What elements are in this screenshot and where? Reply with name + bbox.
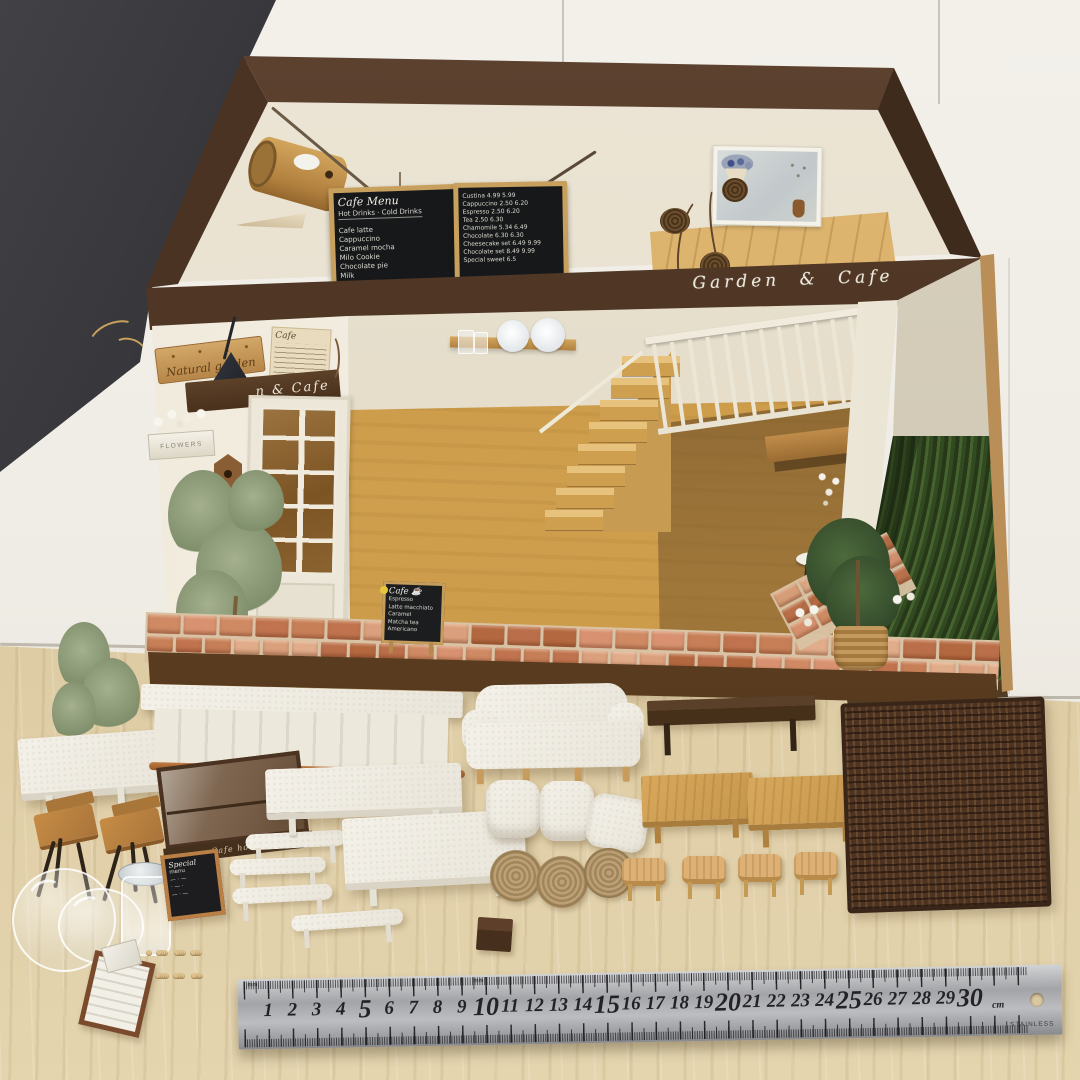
flowers-box-label: FLOWERS bbox=[148, 430, 216, 461]
jute-rope-coil bbox=[536, 856, 588, 908]
ruler-mm-label: mm bbox=[247, 982, 257, 988]
menu-left-title: Cafe Menu bbox=[338, 192, 456, 209]
white-pouf bbox=[486, 780, 540, 838]
menu-chalkboard-left: Cafe Menu Hot Drinks · Cold Drinks Cafe … bbox=[328, 184, 467, 291]
aframe-leg bbox=[389, 641, 393, 653]
special-lines: menu— · —· — ·— · — bbox=[169, 864, 216, 899]
picture-branches bbox=[783, 157, 813, 184]
twig-decor-wreath bbox=[660, 208, 690, 234]
ruler-mm-label: mm bbox=[473, 978, 483, 984]
garden-white-flowers bbox=[788, 600, 828, 632]
twig-decor-wreath bbox=[722, 178, 748, 202]
glass-cup bbox=[458, 330, 474, 354]
pine-tree-basket bbox=[834, 626, 888, 670]
beads-pile bbox=[146, 950, 210, 1010]
menu-left-columns: Hot Drinks · Cold Drinks bbox=[338, 207, 422, 220]
wood-stool bbox=[738, 854, 786, 906]
aframe-board: Cafe ☕ EspressoLatte macchiatoCaramelMat… bbox=[381, 581, 445, 645]
wood-stool bbox=[622, 858, 670, 910]
jute-rope-coil bbox=[490, 850, 542, 902]
wood-stool bbox=[682, 856, 730, 908]
flowers-box: FLOWERS bbox=[146, 410, 215, 466]
ruler-brand: STAINLESS bbox=[1010, 1021, 1054, 1029]
pine-tree-trunk bbox=[856, 560, 860, 636]
aframe-chalkboard: Cafe ☕ EspressoLatte macchiatoCaramelMat… bbox=[381, 581, 445, 655]
log-hole bbox=[324, 170, 334, 180]
dark-brown-bench bbox=[647, 695, 821, 765]
ruler-unit-label: cm bbox=[992, 1000, 1004, 1011]
cafe-poster-title: Cafe bbox=[275, 331, 327, 344]
menu-right-lines: Custina 4.99 5.99Cappuccino 2.50 6.20Esp… bbox=[462, 191, 559, 265]
picture-vase bbox=[792, 199, 804, 217]
special-menu-sign: Special menu— · —· — ·— · — bbox=[160, 849, 226, 922]
lemon-decor bbox=[380, 586, 388, 594]
log-sticker bbox=[293, 153, 320, 171]
glass-cup bbox=[474, 332, 488, 354]
small-wood-block bbox=[476, 917, 513, 952]
wall-seam bbox=[938, 0, 940, 104]
wood-stool bbox=[794, 852, 842, 904]
photo-miniature-cafe-diorama: Cafe Menu Hot Drinks · Cold Drinks Cafe … bbox=[0, 0, 1080, 1080]
wood-table bbox=[641, 772, 755, 848]
ruler-hang-hole bbox=[1030, 993, 1044, 1007]
boucle-sofa bbox=[461, 680, 645, 791]
menu-chalkboard-right: Custina 4.99 5.99Cappuccino 2.50 6.20Esp… bbox=[453, 181, 569, 283]
hanging-hook bbox=[322, 334, 340, 382]
white-plate bbox=[497, 320, 529, 352]
aframe-leg bbox=[429, 643, 433, 655]
brown-woven-rug bbox=[840, 697, 1051, 914]
olive-tree-foliage bbox=[228, 470, 284, 536]
white-bench bbox=[291, 908, 406, 956]
white-plate bbox=[531, 318, 565, 352]
under-loft-flowers bbox=[812, 468, 846, 512]
menu-left-lines: Cafe latteCappuccinoCaramel mochaMilo Co… bbox=[339, 223, 459, 281]
garden-white-flowers bbox=[884, 586, 922, 616]
aframe-lines: EspressoLatte macchiatoCaramelMatcha tea… bbox=[387, 596, 438, 635]
